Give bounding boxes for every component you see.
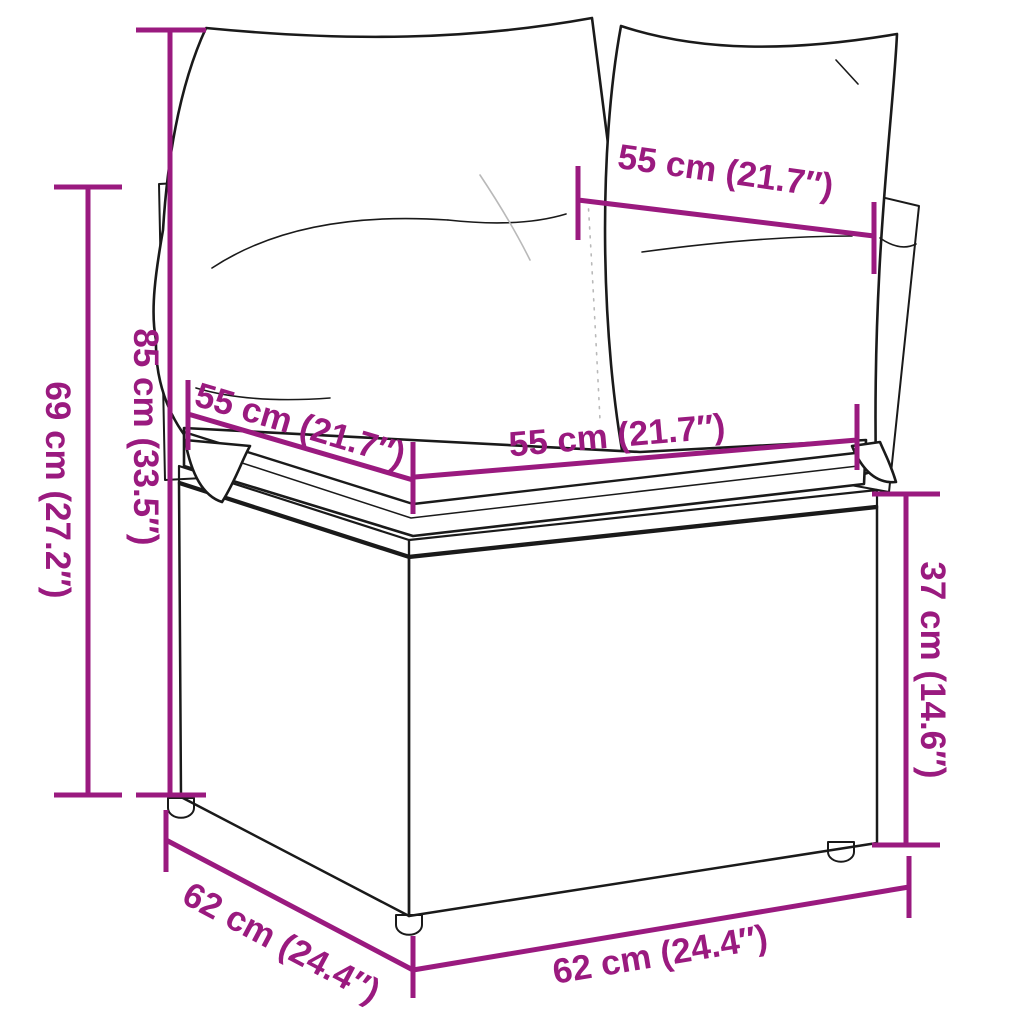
base-foot-front [396, 915, 422, 935]
base-foot-right [828, 842, 854, 862]
dimension-seat-height: 37 cm (14.6″) [872, 494, 952, 845]
sofa-dimension-diagram: 85 cm (33.5″) 69 cm (27.2″) 55 cm (21.7″… [0, 0, 1024, 1024]
dimension-frame-height-label: 69 cm (27.2″) [38, 381, 77, 598]
dimension-base-depth-label: 62 cm (24.4″) [176, 875, 386, 1011]
dimension-base-depth: 62 cm (24.4″) [166, 810, 413, 1011]
wicker-base [168, 466, 877, 935]
dimension-seat-height-label: 37 cm (14.6″) [913, 561, 952, 778]
diagram-canvas: 85 cm (33.5″) 69 cm (27.2″) 55 cm (21.7″… [0, 0, 1024, 1024]
base-face-right [409, 506, 877, 916]
dimension-frame-height: 69 cm (27.2″) [38, 187, 122, 795]
sofa-illustration [154, 18, 919, 935]
dimension-total-height-label: 85 cm (33.5″) [126, 328, 165, 545]
